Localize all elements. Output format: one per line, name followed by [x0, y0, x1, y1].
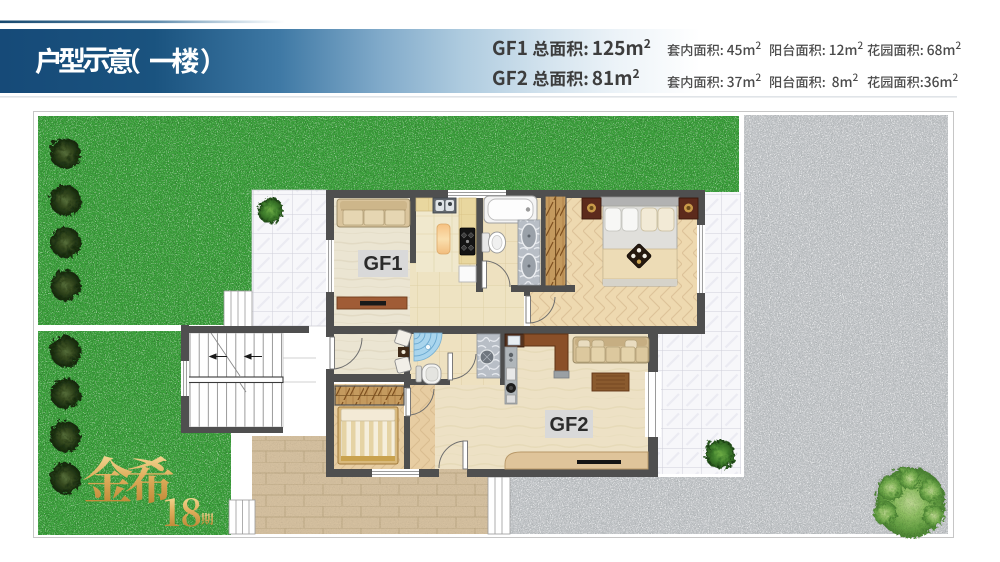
- svg-text:GF2: GF2: [550, 414, 589, 436]
- svg-text:GF1: GF1: [364, 253, 403, 275]
